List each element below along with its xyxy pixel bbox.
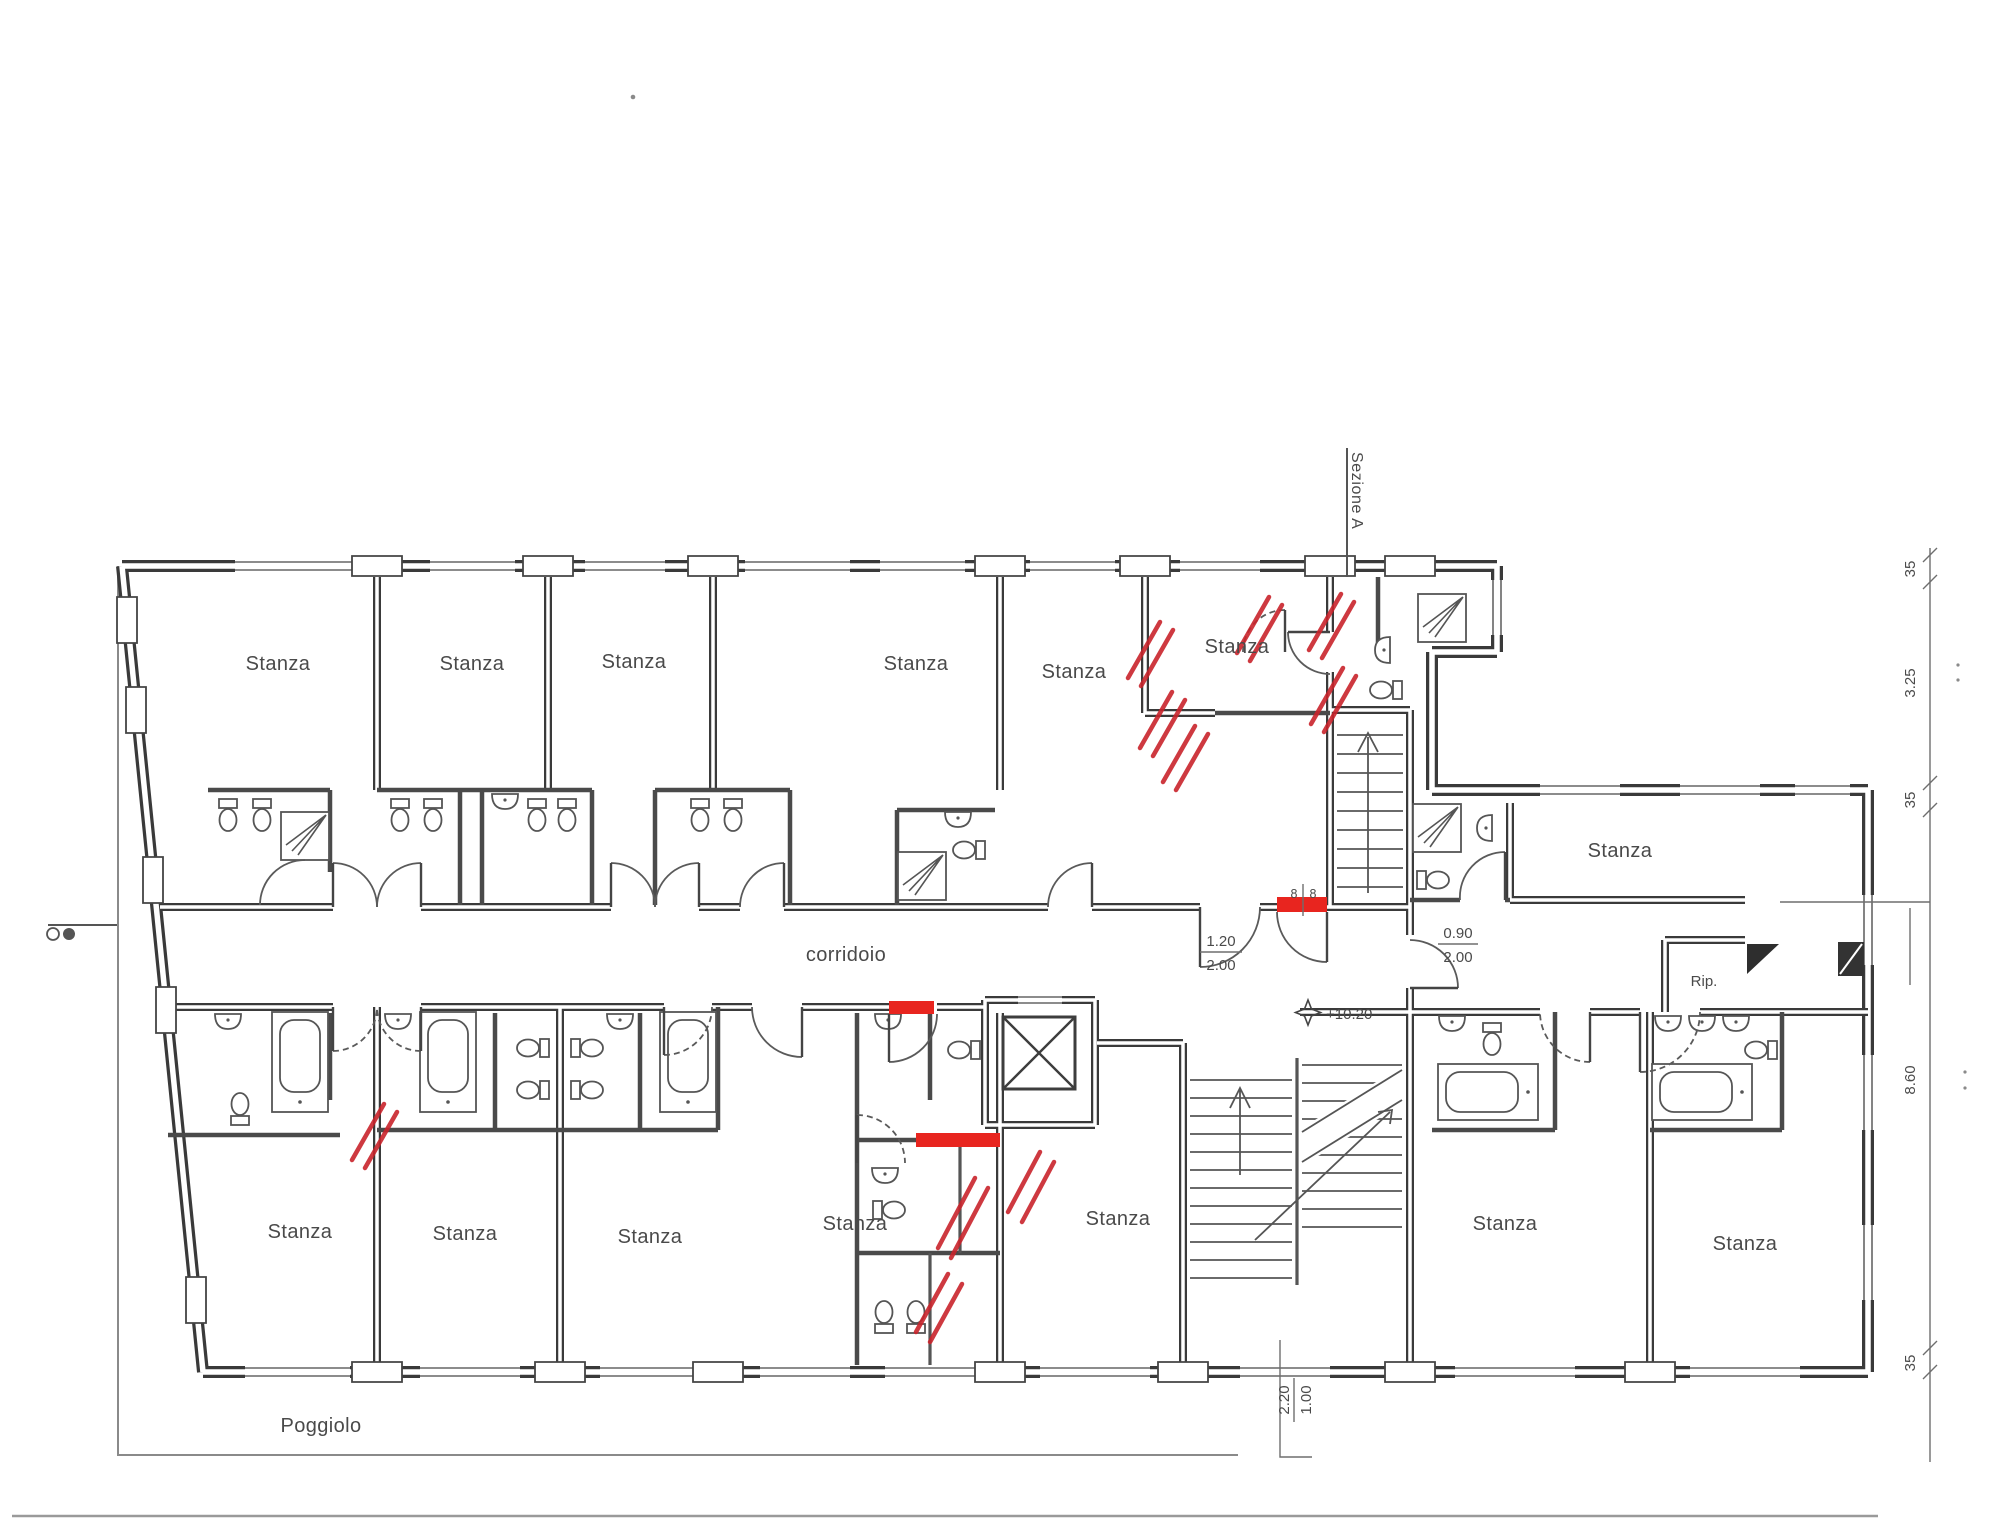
level-value: +10.20 xyxy=(1326,1006,1372,1023)
dim-value: 1.20 xyxy=(1206,933,1235,950)
dim-value: 2.00 xyxy=(1443,949,1472,966)
room-label: Stanza xyxy=(618,1226,683,1248)
scan-specks xyxy=(631,95,1967,1090)
dim-value: 0.90 xyxy=(1443,925,1472,942)
dim-value: 1.00 xyxy=(1298,1385,1315,1414)
new-wall-infill xyxy=(916,1133,1000,1147)
room-label: Stanza xyxy=(1588,840,1653,862)
room-label: Stanza xyxy=(823,1213,888,1235)
bathroom-walls xyxy=(168,577,1782,1365)
staircase-top xyxy=(1337,733,1403,893)
room-label: Stanza xyxy=(1713,1233,1778,1255)
interior-walls xyxy=(160,577,1868,1372)
dim-value: 3.25 xyxy=(1902,668,1919,697)
new-wall-marks xyxy=(889,897,1327,1147)
section-marker-b xyxy=(47,925,117,940)
room-label: Stanza xyxy=(1086,1208,1151,1230)
new-wall-infill xyxy=(1277,897,1327,912)
storage-label: Rip. xyxy=(1691,973,1718,990)
new-wall-infill xyxy=(889,1001,934,1014)
corridor-label: corridoio xyxy=(806,944,886,966)
dim-value: 2.20 xyxy=(1276,1385,1293,1414)
room-label: Stanza xyxy=(440,653,505,675)
room-label: Stanza xyxy=(1042,661,1107,683)
dim-value: 8.60 xyxy=(1902,1065,1919,1094)
dimension-entry: 2.20 1.00 xyxy=(1276,1340,1315,1457)
dimension-door-wing: 0.90 2.00 xyxy=(1438,925,1478,966)
floor-plan-canvas: Stanza Stanza Stanza Stanza Stanza Stanz… xyxy=(0,0,2000,1533)
room-label: Stanza xyxy=(246,653,311,675)
dim-value: 2.00 xyxy=(1206,957,1235,974)
elevator xyxy=(1003,1017,1075,1089)
dim-value: 35 xyxy=(1902,561,1919,578)
storage-door-leaf xyxy=(1747,944,1779,974)
balcony-label: Poggiolo xyxy=(280,1415,361,1437)
dim-value: 8 xyxy=(1291,887,1298,901)
section-a-label: Sezione A xyxy=(1348,452,1365,529)
room-label: Stanza xyxy=(884,653,949,675)
room-label: Stanza xyxy=(433,1223,498,1245)
room-label: Stanza xyxy=(268,1221,333,1243)
dimension-chain-right: 35 3.25 35 8.60 35 xyxy=(1780,548,1937,1462)
room-label: Stanza xyxy=(602,651,667,673)
dim-value: 35 xyxy=(1902,792,1919,809)
scanned-floor-plan-page: Stanza Stanza Stanza Stanza Stanza Stanz… xyxy=(0,0,2000,1533)
room-label: Stanza xyxy=(1205,636,1270,658)
room-label: Stanza xyxy=(1473,1213,1538,1235)
dim-value: 8 xyxy=(1310,887,1317,901)
dim-value: 35 xyxy=(1902,1355,1919,1372)
dimension-door-hall: 1.20 2.00 xyxy=(1200,933,1242,974)
